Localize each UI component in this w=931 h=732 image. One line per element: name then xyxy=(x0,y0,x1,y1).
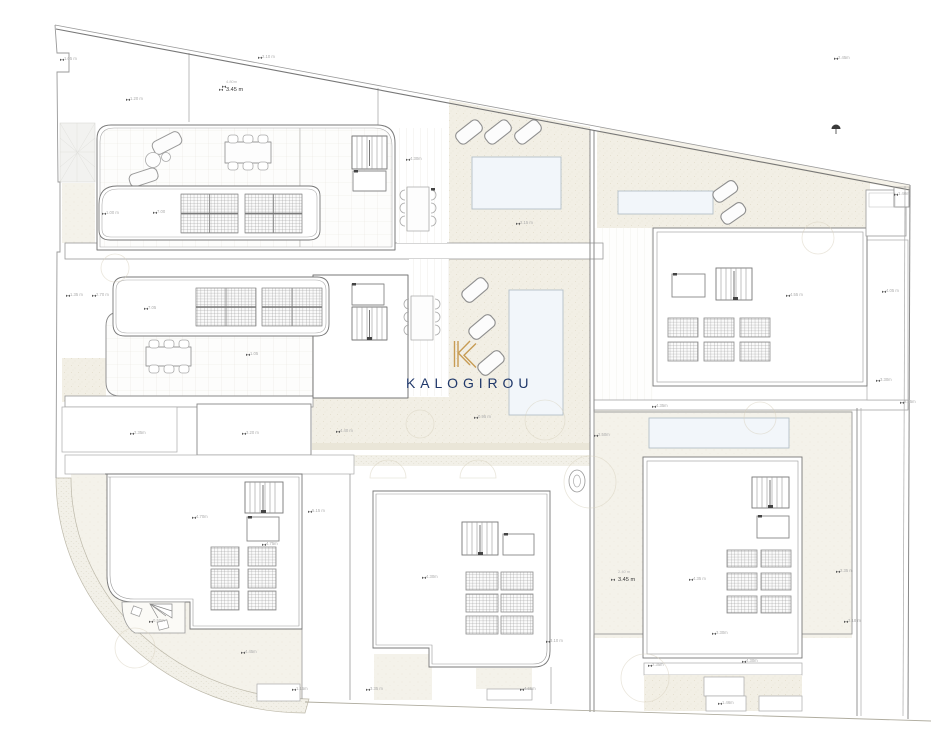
svg-text:3.10 m: 3.10 m xyxy=(550,638,563,643)
svg-text:1.20 m: 1.20 m xyxy=(130,96,143,101)
svg-text:3.20 m: 3.20 m xyxy=(246,430,259,435)
svg-text:1.35 m: 1.35 m xyxy=(70,292,83,297)
svg-text:3.35 m: 3.35 m xyxy=(370,686,383,691)
svg-text:1.46m: 1.46m xyxy=(722,700,734,705)
svg-text:2.50m: 2.50m xyxy=(598,432,610,437)
svg-text:1.05 m: 1.05 m xyxy=(64,56,77,61)
svg-text:4.40 m: 4.40 m xyxy=(340,428,353,433)
svg-text:1.40m: 1.40m xyxy=(898,191,910,196)
svg-text:2.35 m: 2.35 m xyxy=(840,568,853,573)
svg-text:0.95 m: 0.95 m xyxy=(478,414,491,419)
svg-text:3.30m: 3.30m xyxy=(880,377,892,382)
svg-text:3.45 m: 3.45 m xyxy=(226,87,243,93)
svg-text:4.80m: 4.80m xyxy=(226,79,238,84)
svg-text:KALOGIROU: KALOGIROU xyxy=(406,375,533,391)
svg-text:1.00 m: 1.00 m xyxy=(106,210,119,215)
svg-text:4.55 m: 4.55 m xyxy=(790,292,803,297)
svg-text:1.05: 1.05 xyxy=(250,351,259,356)
svg-text:4.30m: 4.30m xyxy=(746,658,758,663)
svg-text:3.18 m: 3.18 m xyxy=(848,618,861,623)
svg-text:2.35m: 2.35m xyxy=(904,399,916,404)
svg-text:3.45 m: 3.45 m xyxy=(618,577,635,583)
svg-text:2.45m: 2.45m xyxy=(838,55,850,60)
svg-text:4.05 m: 4.05 m xyxy=(886,288,899,293)
svg-text:3.30m: 3.30m xyxy=(716,630,728,635)
svg-text:5.15 m: 5.15 m xyxy=(312,508,325,513)
svg-text:7.05: 7.05 xyxy=(148,305,157,310)
svg-text:4.70m: 4.70m xyxy=(196,514,208,519)
svg-text:2.10 m: 2.10 m xyxy=(262,54,275,59)
svg-text:4.30m: 4.30m xyxy=(426,574,438,579)
svg-text:1.15m: 1.15m xyxy=(296,686,308,691)
svg-text:2.35m: 2.35m xyxy=(652,662,664,667)
svg-text:4.65m: 4.65m xyxy=(524,686,536,691)
svg-text:4.75m: 4.75m xyxy=(266,541,278,546)
svg-text:0.50m: 0.50m xyxy=(153,618,165,623)
svg-text:4.35 m: 4.35 m xyxy=(693,576,706,581)
svg-text:4.30m: 4.30m xyxy=(410,156,422,161)
svg-text:2.15 m: 2.15 m xyxy=(520,220,533,225)
svg-text:4.35m: 4.35m xyxy=(656,403,668,408)
svg-text:2.70 m: 2.70 m xyxy=(96,292,109,297)
svg-text:2.35m: 2.35m xyxy=(134,430,146,435)
svg-text:2.40 m: 2.40 m xyxy=(618,569,631,574)
svg-text:4.45m: 4.45m xyxy=(245,649,257,654)
svg-text:7.00: 7.00 xyxy=(157,209,166,214)
